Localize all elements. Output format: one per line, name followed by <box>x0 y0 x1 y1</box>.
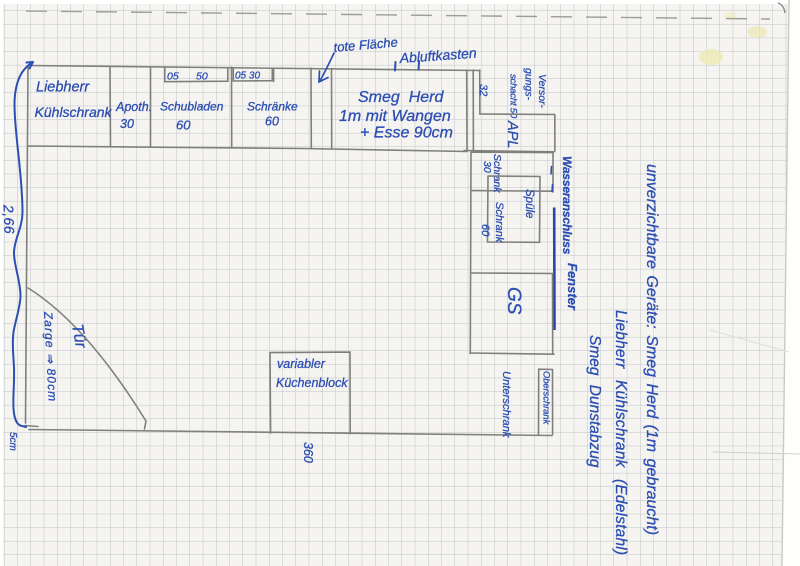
svg-text:50: 50 <box>196 71 208 83</box>
svg-text:Smeg Dunstabzug: Smeg Dunstabzug <box>586 335 603 468</box>
svg-text:Schrank: Schrank <box>491 154 503 193</box>
svg-text:unverzichtbare Geräte: Smeg He: unverzichtbare Geräte: Smeg Herd (1m geb… <box>643 164 660 535</box>
svg-text:Apoth.: Apoth. <box>115 100 152 114</box>
svg-text:30: 30 <box>120 117 134 131</box>
svg-text:Schränke: Schränke <box>247 100 298 114</box>
svg-text:5cm: 5cm <box>7 432 18 451</box>
svg-text:Kühlschrank: Kühlschrank <box>35 104 113 120</box>
svg-text:APL: APL <box>504 120 520 148</box>
svg-text:gungs-: gungs- <box>523 68 535 101</box>
svg-text:2,66: 2,66 <box>0 204 17 235</box>
svg-text:schacht 50: schacht 50 <box>508 74 519 119</box>
svg-text:05 30: 05 30 <box>235 71 260 82</box>
svg-text:60: 60 <box>265 115 279 129</box>
svg-text:Liebherr Kühlschrank (Edelstah: Liebherr Kühlschrank (Edelstahl) <box>612 310 629 555</box>
svg-text:Wasseranschluss: Wasseranschluss <box>560 156 574 255</box>
svg-text:32: 32 <box>477 84 489 96</box>
svg-text:Fenster: Fenster <box>565 263 580 311</box>
svg-text:30: 30 <box>481 161 493 173</box>
svg-text:Schrank: Schrank <box>493 202 505 243</box>
svg-text:Liebherr: Liebherr <box>36 80 90 96</box>
svg-text:+ Esse 90cm: + Esse 90cm <box>360 125 453 142</box>
svg-text:Unterschrank: Unterschrank <box>500 371 512 439</box>
svg-text:60: 60 <box>176 118 191 133</box>
svg-text:Schubladen: Schubladen <box>160 100 224 114</box>
svg-text:variabler: variabler <box>277 357 326 371</box>
svg-text:Oberschrank: Oberschrank <box>542 371 552 426</box>
svg-text:1m mit Wangen: 1m mit Wangen <box>339 108 451 125</box>
svg-text:Versor-: Versor- <box>536 74 548 108</box>
svg-text:05: 05 <box>167 71 179 83</box>
svg-text:Spüle: Spüle <box>523 189 535 218</box>
svg-text:Küchenblock: Küchenblock <box>276 376 348 390</box>
svg-text:Smeg Herd: Smeg Herd <box>358 89 444 106</box>
svg-text:360: 360 <box>301 442 315 463</box>
svg-text:60: 60 <box>479 224 491 237</box>
svg-text:GS: GS <box>503 287 524 315</box>
